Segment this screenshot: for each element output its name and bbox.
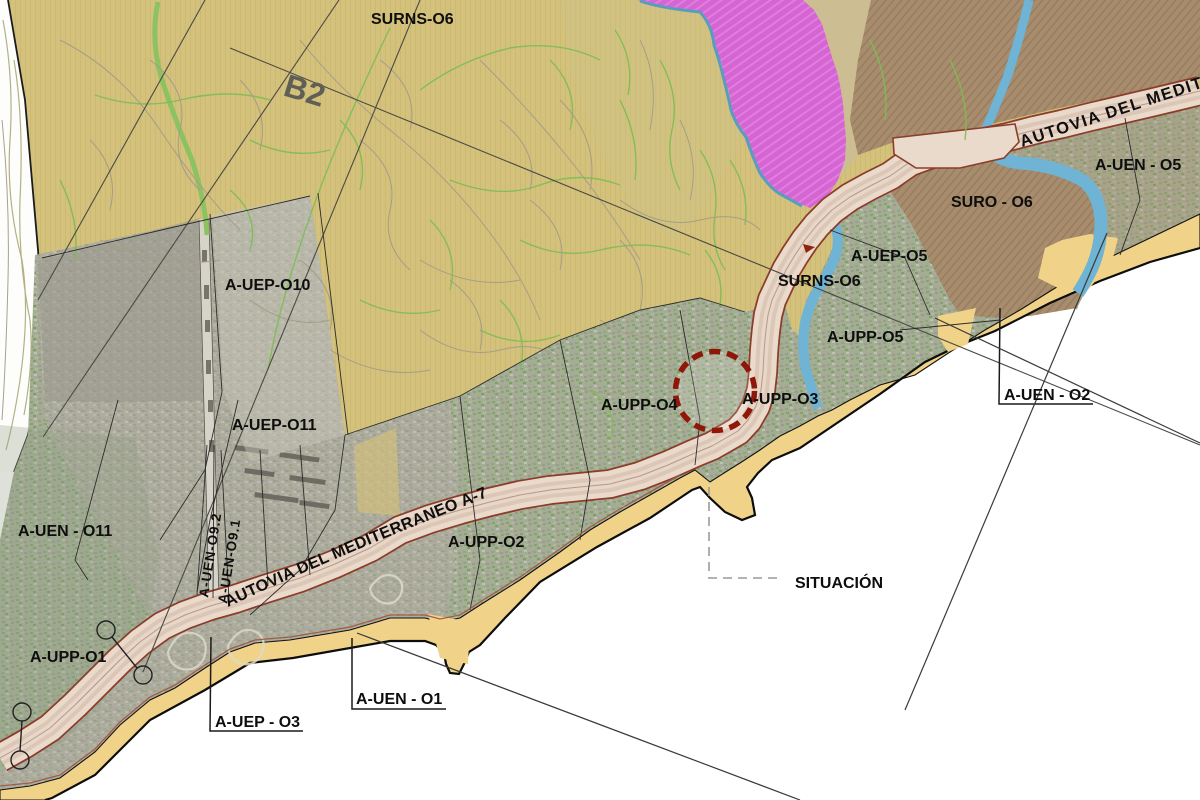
svg-text:A-UEN - O1: A-UEN - O1: [356, 691, 442, 708]
svg-text:A-UEN - O11: A-UEN - O11: [18, 523, 112, 540]
svg-text:A-UEN - O2: A-UEN - O2: [1004, 387, 1090, 404]
svg-text:A-UEP-O10: A-UEP-O10: [225, 277, 310, 294]
svg-text:A-UPP-O1: A-UPP-O1: [30, 649, 107, 666]
svg-text:SURNS-O6: SURNS-O6: [371, 11, 454, 28]
svg-text:A-UEP - O3: A-UEP - O3: [215, 714, 300, 731]
svg-text:A-UEP-O11: A-UEP-O11: [232, 417, 317, 434]
svg-text:A-UEP-O5: A-UEP-O5: [851, 248, 928, 265]
svg-text:SURNS-O6: SURNS-O6: [778, 273, 861, 290]
svg-text:A-UPP-O3: A-UPP-O3: [742, 391, 819, 408]
svg-text:A-UPP-O4: A-UPP-O4: [601, 397, 678, 414]
svg-text:A-UPP-O2: A-UPP-O2: [448, 534, 525, 551]
svg-text:A-UEN - O5: A-UEN - O5: [1095, 157, 1181, 174]
svg-text:SITUACIÓN: SITUACIÓN: [795, 573, 883, 592]
svg-text:A-UPP-O5: A-UPP-O5: [827, 329, 904, 346]
svg-text:SURO - O6: SURO - O6: [951, 194, 1033, 211]
